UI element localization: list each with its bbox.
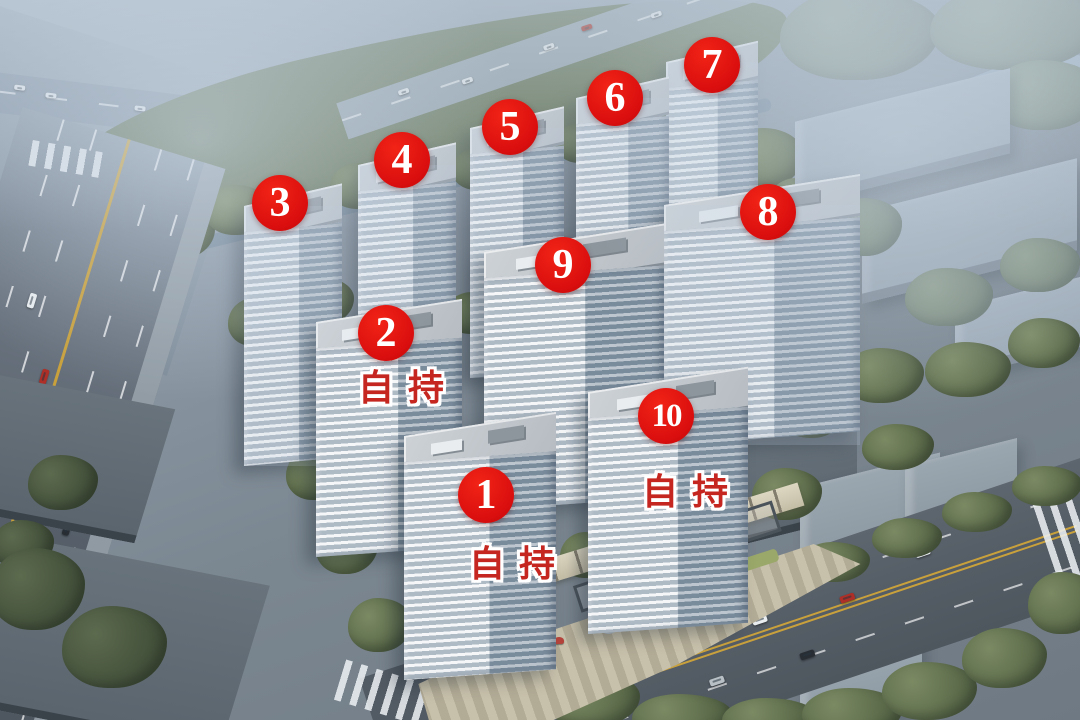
- building-badge-10: 10: [638, 388, 694, 444]
- building-number: 6: [605, 77, 626, 119]
- building-number: 9: [553, 244, 574, 286]
- building-badge-7: 7: [684, 37, 740, 93]
- building-badge-8: 8: [740, 184, 796, 240]
- self-holding-label-building-1: 自持: [455, 546, 569, 582]
- building-number: 10: [652, 400, 681, 433]
- building-number: 4: [392, 139, 413, 181]
- building-badge-4: 4: [374, 132, 430, 188]
- building-badge-5: 5: [482, 99, 538, 155]
- self-holding-label-building-10: 自持: [628, 474, 742, 510]
- self-holding-label-building-2: 自持: [344, 370, 458, 406]
- building-number: 2: [376, 312, 397, 354]
- building-number: 5: [500, 106, 521, 148]
- building-badge-9: 9: [535, 237, 591, 293]
- building-number: 8: [758, 191, 779, 233]
- aerial-render-scene: 1 2 3 4 5 6 7 8 9 10 自持 自持 自持: [0, 0, 1080, 720]
- annotation-layer: 1 2 3 4 5 6 7 8 9 10 自持 自持 自持: [0, 0, 1080, 720]
- building-number: 3: [270, 182, 291, 224]
- building-badge-2: 2: [358, 305, 414, 361]
- building-badge-1: 1: [458, 467, 514, 523]
- building-number: 7: [702, 44, 723, 86]
- building-badge-6: 6: [587, 70, 643, 126]
- building-number: 1: [476, 474, 497, 516]
- building-badge-3: 3: [252, 175, 308, 231]
